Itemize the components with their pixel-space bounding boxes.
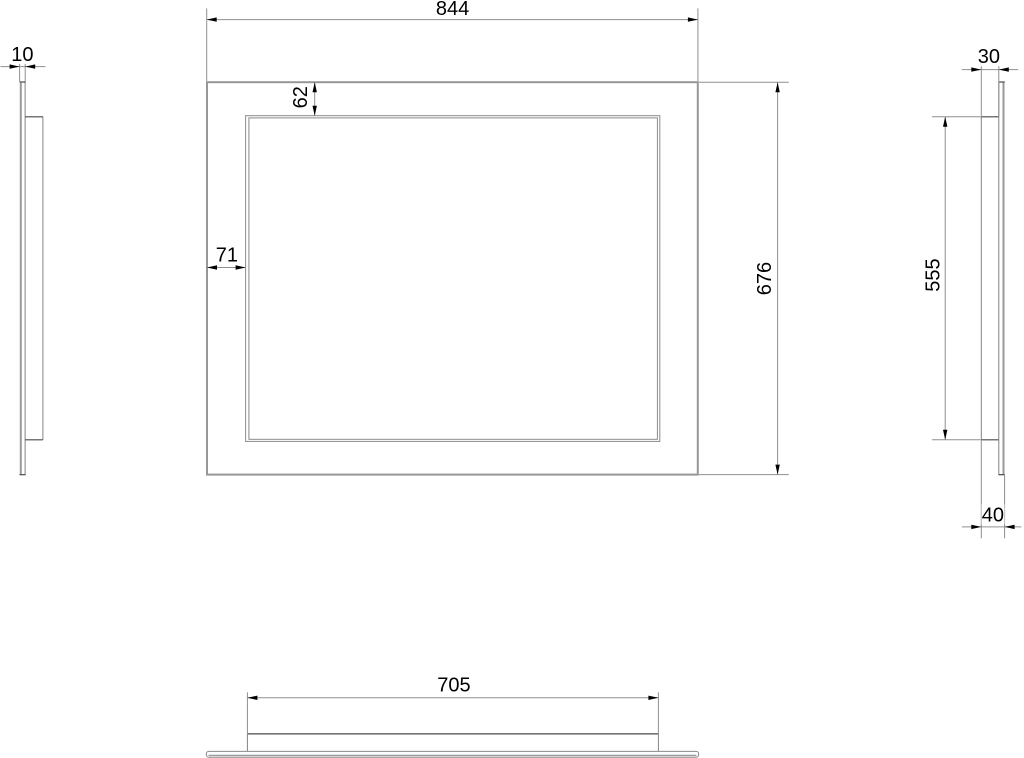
- svg-text:555: 555: [923, 258, 945, 291]
- svg-text:10: 10: [11, 44, 33, 66]
- svg-text:30: 30: [978, 46, 1000, 68]
- svg-text:62: 62: [290, 86, 312, 108]
- svg-text:844: 844: [436, 0, 469, 20]
- svg-text:676: 676: [754, 262, 776, 295]
- svg-text:71: 71: [216, 244, 238, 266]
- svg-text:40: 40: [982, 505, 1004, 527]
- svg-text:705: 705: [437, 675, 470, 697]
